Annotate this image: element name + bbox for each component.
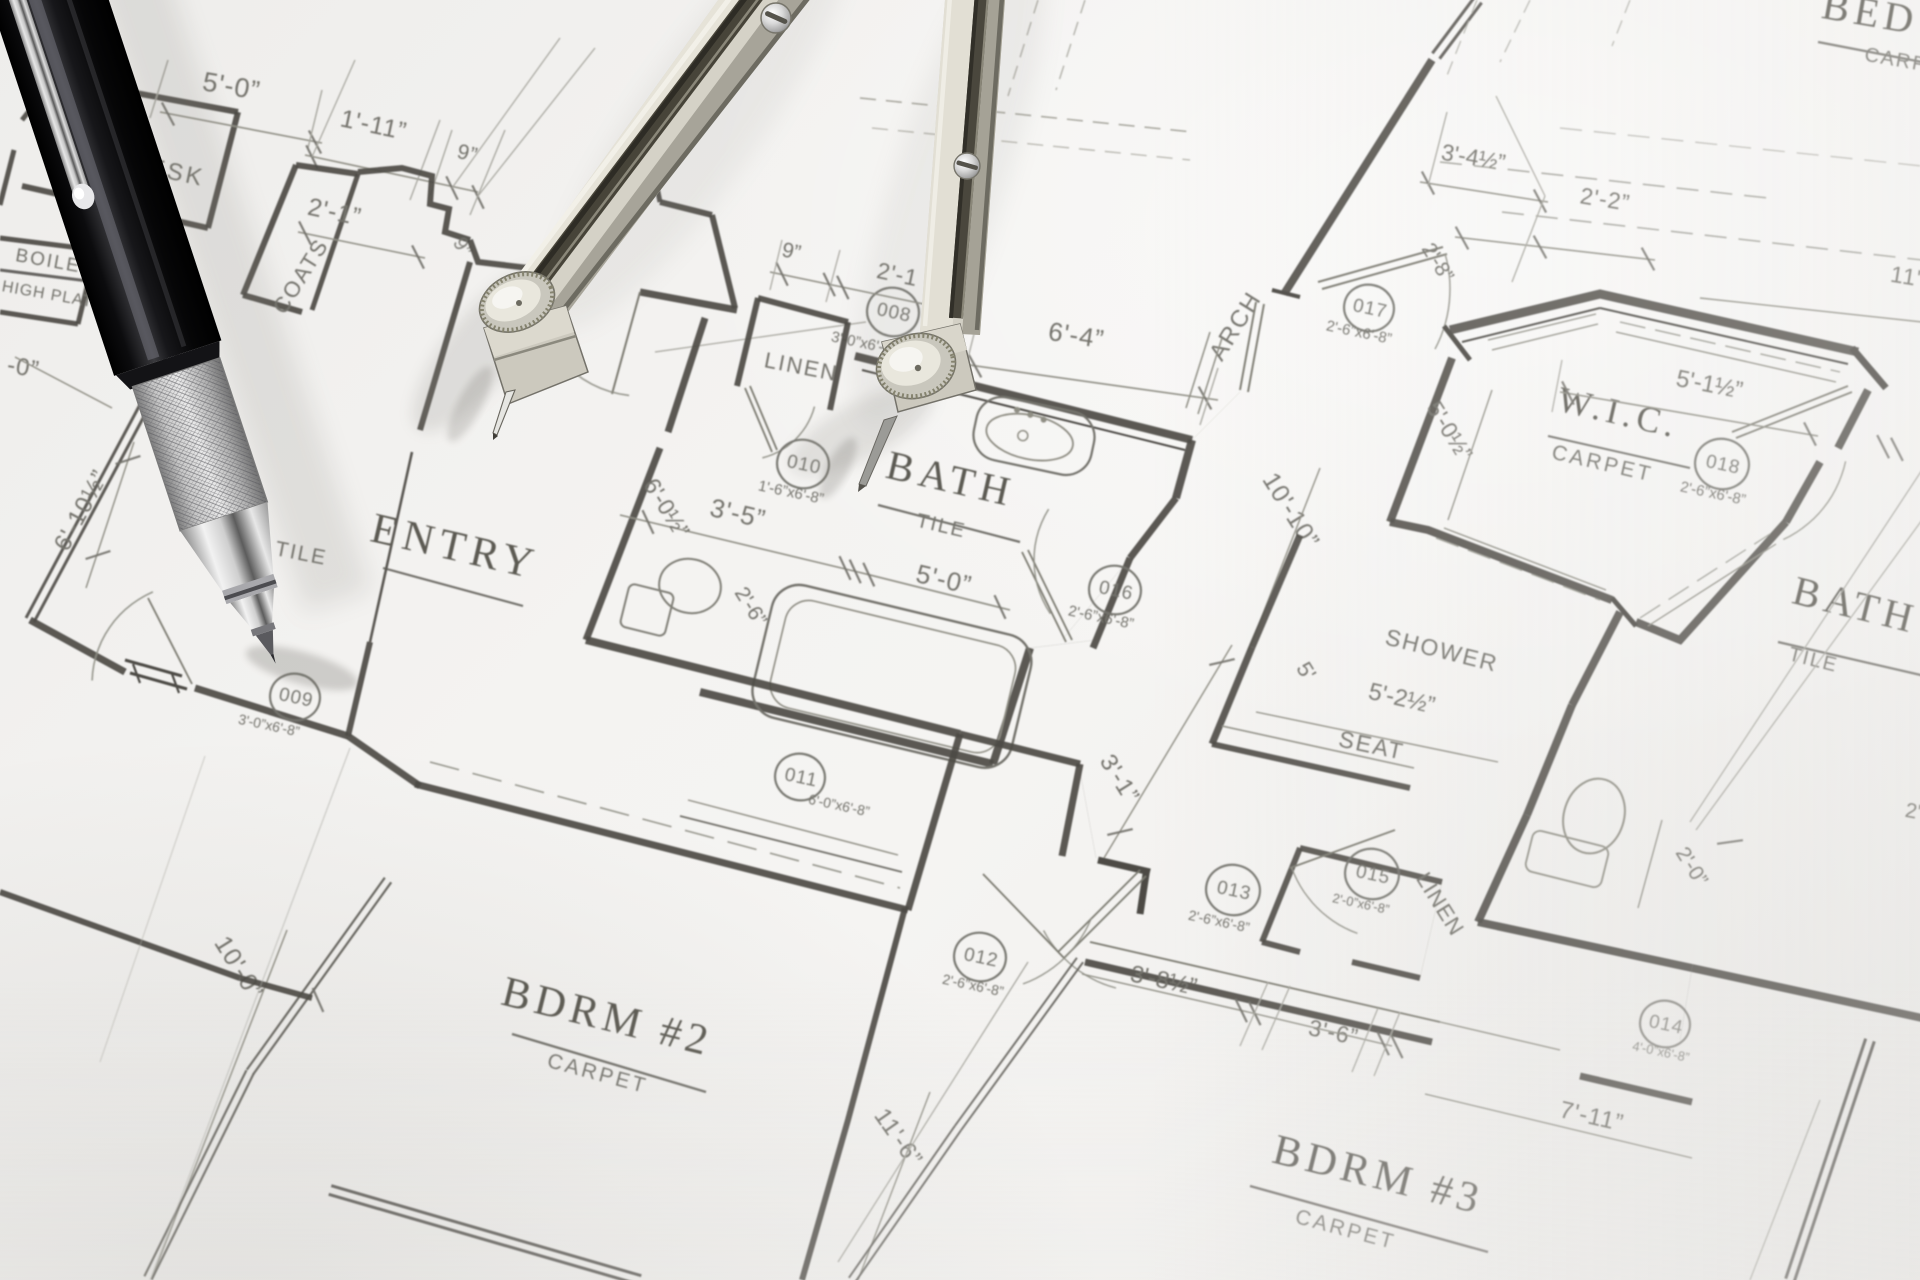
svg-text:9”: 9” xyxy=(780,238,803,264)
svg-text:6'-10½”: 6'-10½” xyxy=(49,465,114,555)
svg-text:3'-5”: 3'-5” xyxy=(707,492,769,534)
svg-text:ENTRY: ENTRY xyxy=(366,505,543,589)
svg-text:TILE: TILE xyxy=(914,510,968,543)
svg-text:6'-4”: 6'-4” xyxy=(1046,316,1106,354)
svg-text:6'-0½”: 6'-0½” xyxy=(639,474,695,542)
svg-text:016: 016 xyxy=(1097,577,1135,605)
svg-text:6'-0”x6'-8”: 6'-0”x6'-8” xyxy=(807,791,871,820)
svg-text:2'-1”: 2'-1” xyxy=(305,193,364,232)
svg-text:011: 011 xyxy=(783,764,820,791)
svg-text:009: 009 xyxy=(277,684,315,712)
svg-text:2'-6”: 2'-6” xyxy=(730,583,771,630)
svg-text:012: 012 xyxy=(962,944,1000,972)
svg-text:3'-1”: 3'-1” xyxy=(1094,750,1145,809)
svg-text:5'-0”: 5'-0” xyxy=(200,66,262,106)
svg-text:LINEN: LINEN xyxy=(762,347,840,386)
svg-text:BATH: BATH xyxy=(882,441,1020,515)
svg-text:1'-6”x6'-8”: 1'-6”x6'-8” xyxy=(757,477,826,507)
svg-text:1'-11”: 1'-11” xyxy=(338,104,410,145)
